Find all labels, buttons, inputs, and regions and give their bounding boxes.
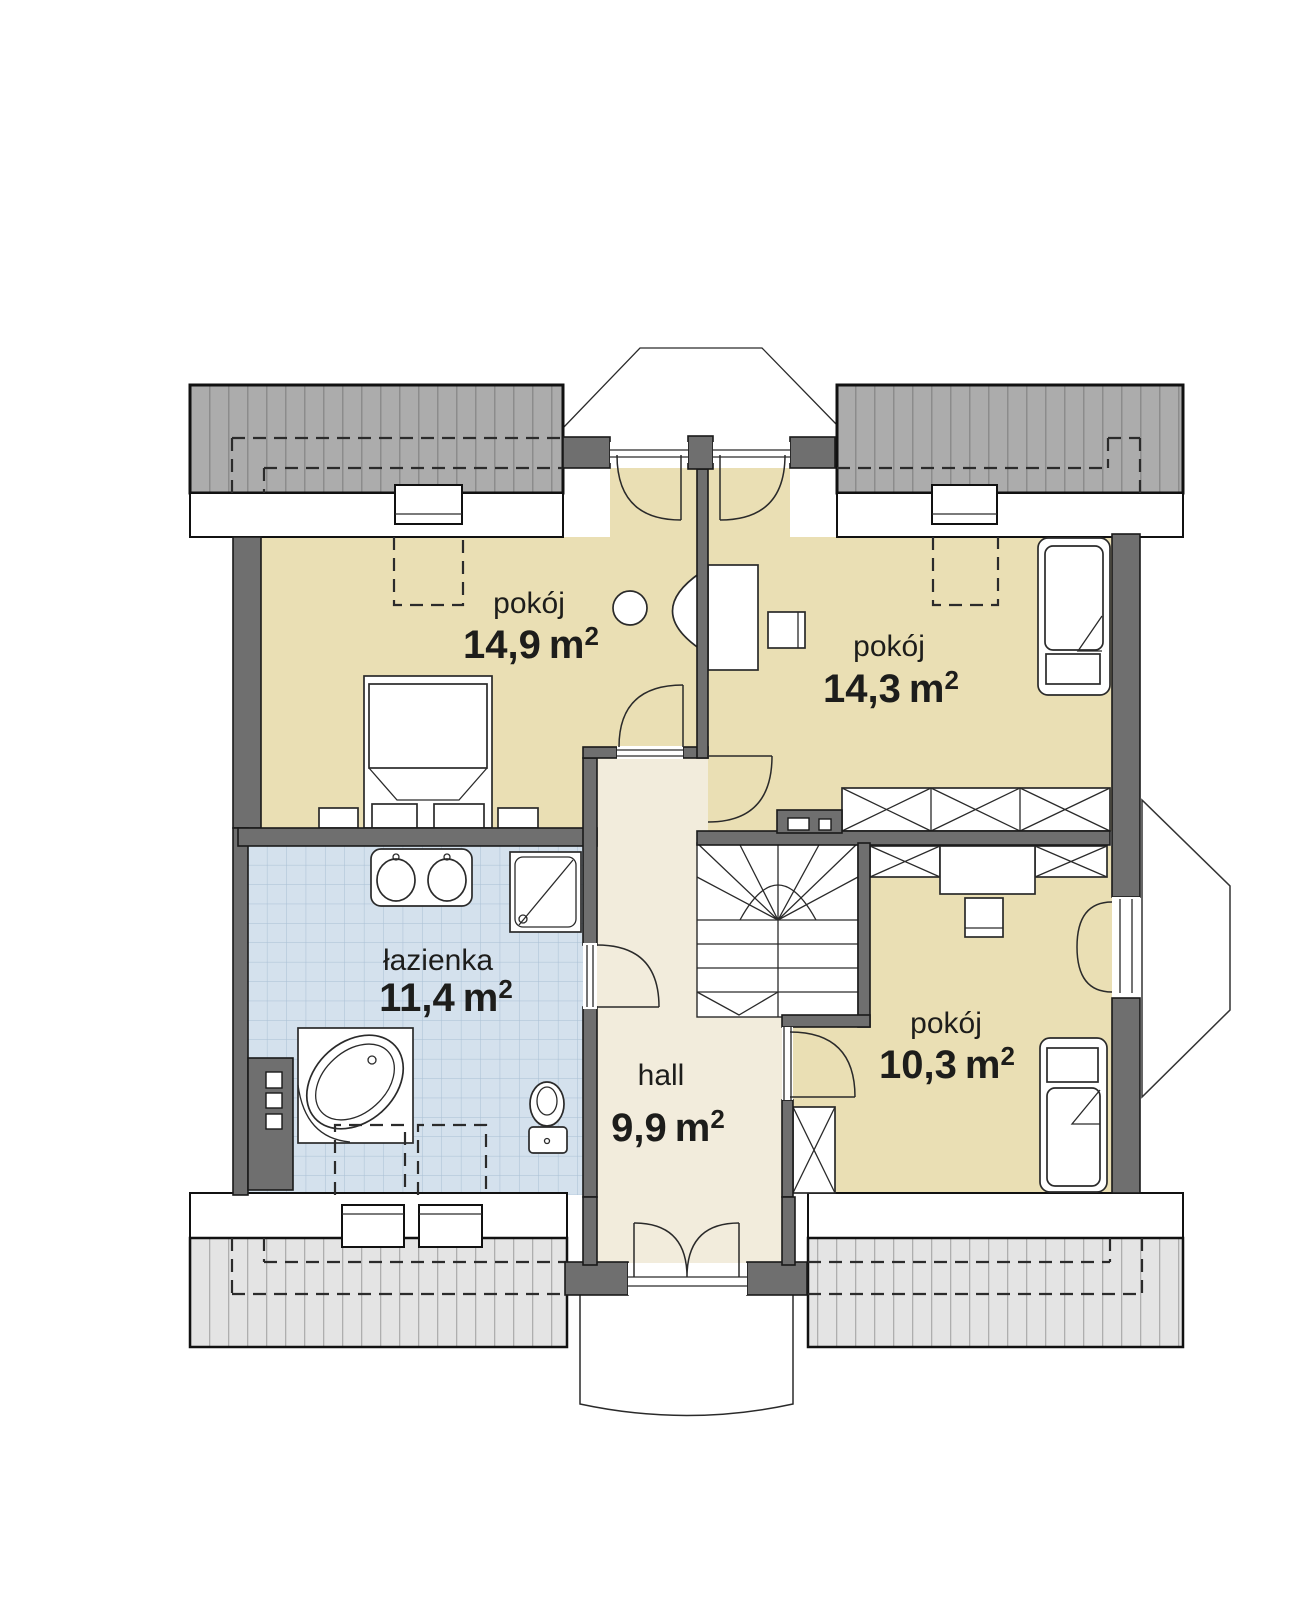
hall-floor-corridor [597, 831, 698, 1017]
wall-stair-right [858, 843, 870, 1027]
chimney-icon [777, 810, 842, 833]
dormer-roof-outline [563, 348, 837, 428]
wall-room-bottom-right-left [782, 1100, 793, 1197]
wall-right-upper [1112, 534, 1140, 897]
roof-bottom-right [808, 1238, 1183, 1347]
hall-floor-upper [597, 758, 708, 831]
wall-bathroom-left [233, 828, 248, 1195]
wardrobe-icon [793, 1107, 835, 1193]
wardrobe-icon [842, 788, 1110, 831]
eave-band-top-right [837, 493, 1183, 537]
room-name-label: pokój [493, 587, 565, 620]
pillow-icon [1047, 1048, 1098, 1082]
room-area-label: 14,3m2 [823, 665, 959, 711]
eave-band-top-left [190, 493, 563, 537]
single-bed-icon [1038, 538, 1110, 695]
wall-hall-left-lower [583, 1007, 597, 1197]
double-bed-icon [364, 676, 492, 828]
shower-icon [510, 852, 581, 932]
dresser-icon [940, 846, 1035, 894]
window-top-right [932, 485, 997, 524]
chair-icon [768, 612, 805, 648]
room-name-label: hall [638, 1059, 685, 1092]
terrace-outline [580, 1295, 793, 1416]
room-area-label: 10,3m2 [879, 1041, 1015, 1087]
window-top-left [395, 485, 462, 524]
desk-icon [708, 565, 758, 670]
room-name-label: pokój [853, 630, 925, 663]
single-bed-icon [1040, 1038, 1107, 1192]
double-washbasin-icon [371, 849, 472, 906]
room-area-label: 14,9m2 [463, 621, 599, 667]
room-name-label: pokój [910, 1007, 982, 1040]
room-area-label: 11,4m2 [379, 974, 513, 1020]
wall-hall-top-stub [583, 747, 617, 758]
toilet-icon [529, 1082, 567, 1153]
window-bottom-left-1 [342, 1205, 404, 1247]
eave-band-bottom-right [808, 1193, 1183, 1238]
wall-post-bottom-left [565, 1262, 628, 1295]
wall-partition-rooms [697, 469, 708, 758]
roof-bottom-left [190, 1238, 567, 1347]
staircase-icon [697, 843, 858, 1017]
wall-left-exterior [233, 537, 261, 828]
pillow-icon [1046, 654, 1100, 684]
wall-right-lower [1112, 998, 1140, 1193]
wall-bathroom-top [238, 828, 597, 846]
wall-dormer-post-right [790, 437, 835, 468]
desk-icon [965, 898, 1003, 937]
nightstand-icon [319, 808, 358, 828]
wall-dormer-post-center [688, 436, 713, 469]
wall-stair-bottom [782, 1015, 870, 1027]
pillow-icon [434, 804, 484, 828]
room-top-left-window-recess-floor [610, 468, 697, 538]
nightstand-icon [498, 808, 538, 828]
room-top-right-door-recess-floor [713, 468, 790, 538]
window-bottom-left-2 [419, 1205, 482, 1247]
stool-icon [613, 591, 647, 625]
wall-jut-right [782, 1197, 795, 1265]
pillow-icon [372, 804, 417, 828]
wall-dormer-post-left [563, 437, 610, 468]
wall-room-divider [697, 831, 1110, 845]
room-name-label: łazienka [383, 944, 493, 977]
corner-bathtub-icon [288, 1016, 422, 1148]
wall-post-bottom-right [747, 1262, 807, 1295]
wall-hall-left-upper [583, 758, 597, 945]
floor-plan: pokój 14,9m2 pokój 14,3m2 łazienka 11,4m… [0, 0, 1303, 1599]
side-balcony-outline [1142, 800, 1230, 1097]
wall-jut-left [583, 1197, 597, 1265]
chimney-icon [248, 1058, 293, 1190]
